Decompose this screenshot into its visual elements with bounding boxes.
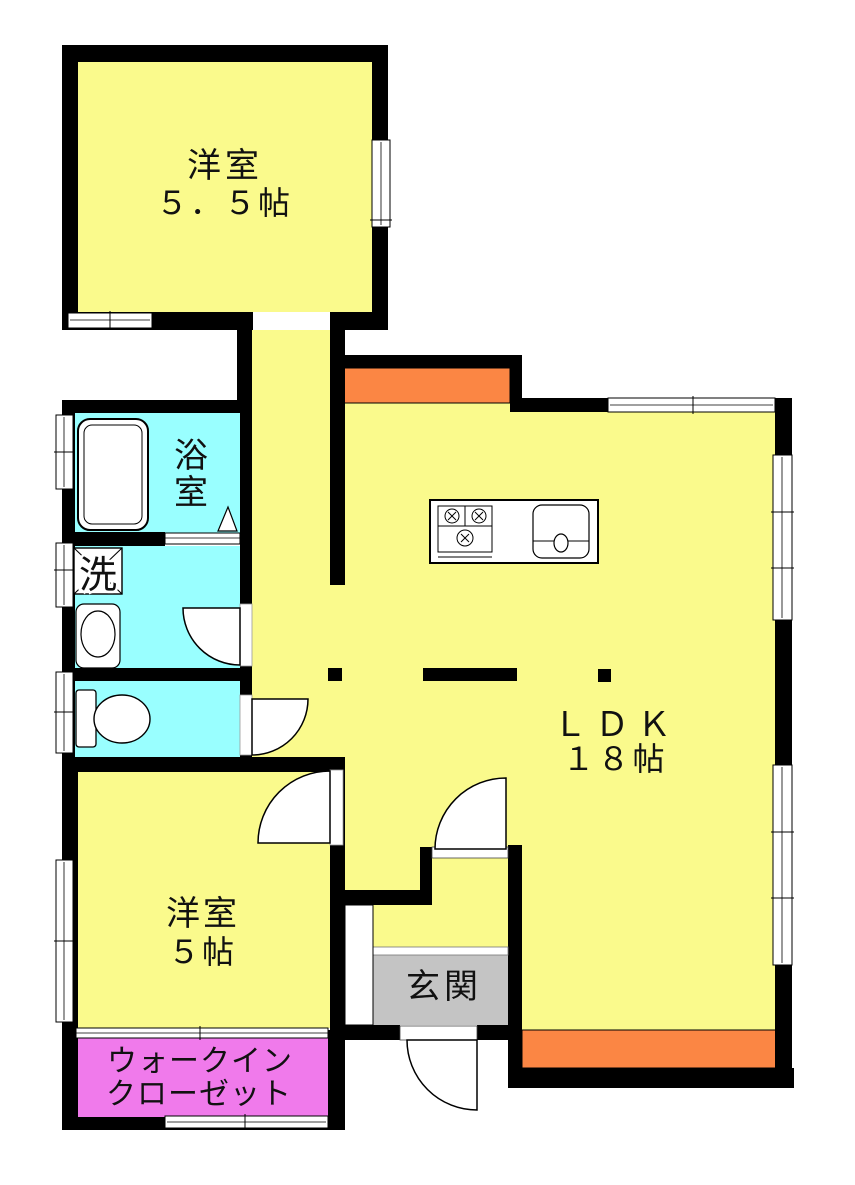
closet-label-line1: ウォークイン — [107, 1045, 293, 1078]
wall-segment — [508, 845, 522, 1088]
sink — [533, 505, 589, 558]
window — [370, 140, 392, 227]
floor-plan: 洋室 ５．５帖 浴 室 洗 ＬＤＫ １８帖 洋室 ５帖 玄関 ウォークイン クロ… — [0, 0, 855, 1185]
wall-segment — [508, 1068, 794, 1088]
bathroom-name-label-line1: 浴 — [174, 437, 208, 475]
orange-strip-top — [342, 368, 510, 403]
wall-segment — [345, 890, 432, 905]
window — [54, 672, 75, 753]
wash-basin — [76, 604, 120, 668]
wall-segment — [332, 355, 522, 368]
shoe-cabinet — [345, 905, 373, 1025]
wall-segment — [62, 45, 388, 62]
wall-segment — [330, 312, 345, 585]
window — [68, 311, 152, 330]
window — [165, 1114, 328, 1130]
ldk-area-label: １８帖 — [562, 741, 667, 777]
wall-segment — [62, 532, 165, 546]
entry-hall-floor — [373, 858, 510, 955]
floor-plan-drawing: 洋室 ５．５帖 浴 室 洗 ＬＤＫ １８帖 洋室 ５帖 玄関 ウォークイン クロ… — [0, 0, 855, 1185]
wall-segment — [345, 1025, 400, 1040]
entrance-label: 玄関 — [406, 968, 482, 1006]
front-door-opening — [400, 1026, 477, 1040]
corridor-floor — [252, 330, 330, 586]
wall-segment — [62, 400, 252, 413]
window — [771, 765, 794, 965]
window — [608, 396, 775, 414]
bathroom-sliding-door — [165, 533, 240, 544]
washroom-door-opening — [240, 604, 252, 666]
wall-segment — [328, 1030, 345, 1130]
bedroom2-name-label: 洋室 — [166, 895, 240, 933]
closet-label-line2: クローゼット — [106, 1078, 292, 1111]
bathtub — [78, 419, 148, 530]
wall-segment — [62, 757, 345, 772]
toilet-door-opening — [240, 695, 252, 755]
entrance-step — [373, 947, 508, 955]
wall-segment — [62, 62, 78, 330]
kitchen-half-wall — [423, 668, 517, 681]
ldk-name-label: ＬＤＫ — [553, 706, 679, 744]
window — [54, 543, 75, 607]
pillar — [328, 668, 342, 681]
bedroom2-area-label: ５帖 — [168, 934, 236, 970]
wall-segment — [62, 668, 240, 681]
closet-sliding-door — [76, 1026, 328, 1040]
bathroom-name-label-line2: 室 — [174, 474, 208, 512]
bedroom1-name-label: 洋室 — [187, 147, 263, 185]
pillar — [598, 669, 611, 682]
kitchen-counter — [430, 500, 598, 563]
window — [54, 860, 75, 1022]
wall-segment — [62, 1028, 78, 1130]
front-door-swing — [407, 1040, 477, 1110]
wall-segment — [477, 1025, 522, 1040]
window — [771, 455, 794, 620]
orange-strip-bottom — [522, 1030, 778, 1068]
bedroom1-area-label: ５．５帖 — [156, 185, 292, 221]
bedroom2-door-opening — [330, 770, 343, 845]
laundry-label: 洗 — [79, 555, 117, 597]
window — [54, 415, 75, 489]
